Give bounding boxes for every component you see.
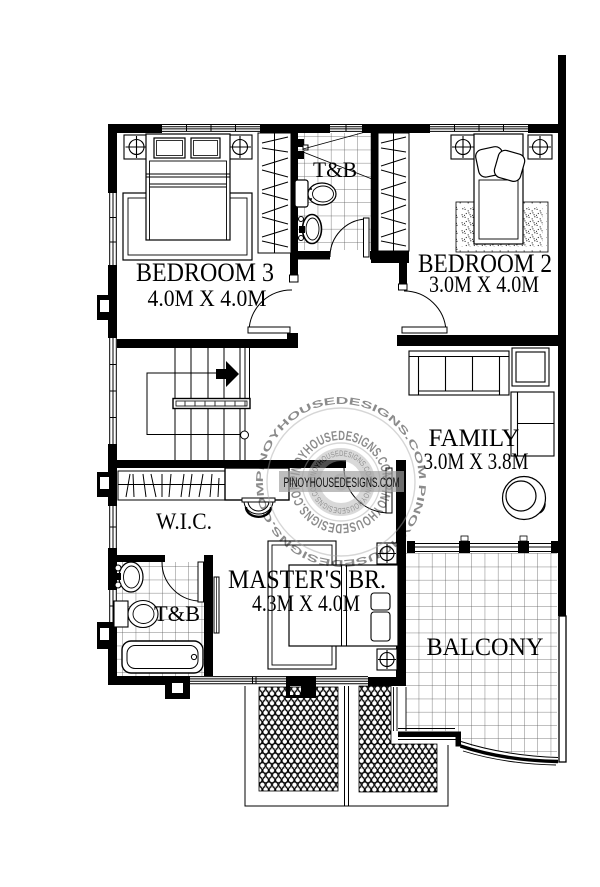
svg-text:BALCONY: BALCONY	[427, 634, 544, 661]
svg-text:T&B: T&B	[154, 601, 200, 626]
svg-text:BEDROOM 3: BEDROOM 3	[136, 258, 274, 287]
svg-text:MASTER'S BR.: MASTER'S BR.	[228, 565, 386, 594]
svg-text:T&B: T&B	[313, 157, 357, 182]
svg-text:3.0M X 3.8M: 3.0M X 3.8M	[424, 449, 529, 474]
svg-text:W.I.C.: W.I.C.	[156, 509, 212, 534]
svg-text:PINOYHOUSEDESIGNS.COM: PINOYHOUSEDESIGNS.COM	[284, 475, 400, 490]
svg-text:4.3M X 4.0M: 4.3M X 4.0M	[252, 591, 360, 616]
svg-text:4.0M X 4.0M: 4.0M X 4.0M	[148, 286, 267, 311]
svg-text:FAMILY: FAMILY	[429, 425, 520, 452]
svg-text:3.0M X 4.0M: 3.0M X 4.0M	[429, 272, 539, 297]
